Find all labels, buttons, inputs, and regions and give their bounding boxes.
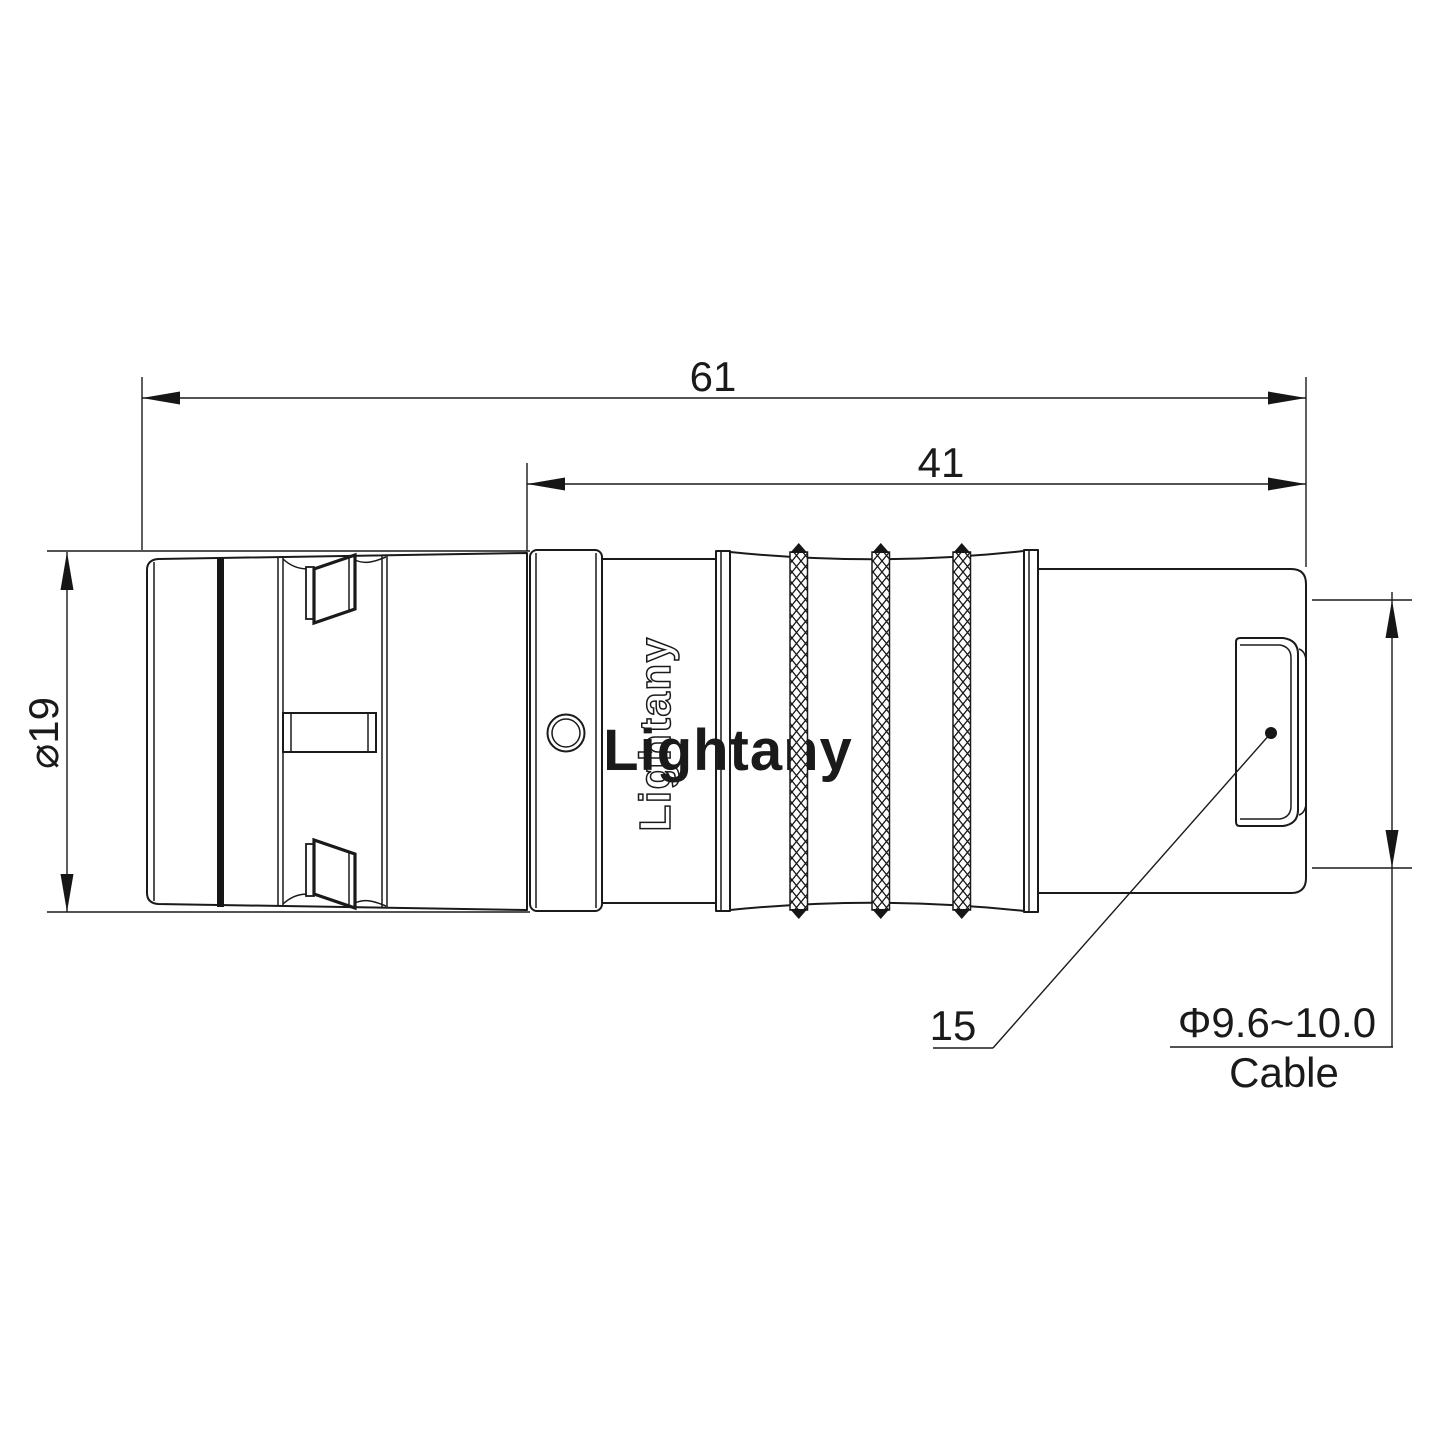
body-engraving-text: Lightany [631,636,680,831]
dimension-rear-length: 41 [527,439,1306,551]
dimension-value-61: 61 [690,353,737,400]
arrowhead-up [1386,600,1399,638]
arrowhead-up [61,552,74,590]
dimension-value-41: 41 [918,439,965,486]
cable-label: Cable [1229,1049,1339,1096]
arrowhead-down [61,874,74,912]
latch-tab-bottom [306,840,355,908]
collar-outline [530,550,602,911]
arrowhead-right [1268,392,1306,405]
cap-edge-hooks [1299,649,1306,815]
technical-drawing-canvas: Lightany [0,0,1440,1440]
ring-right [1024,550,1038,912]
arrowhead-left [142,392,180,405]
vent-hole-inner [552,719,580,747]
knurl-band [790,543,808,919]
latch-tab-top [306,555,355,623]
collar [530,550,602,911]
arrowhead-down [1386,830,1399,868]
arrowhead-left [527,478,565,491]
item-number-15: 15 [930,1002,977,1049]
arrowhead-right [1268,478,1306,491]
dimension-value-diameter-19: ⌀19 [20,697,67,769]
vent-hole-outer [548,715,585,752]
cable-diameter-range-label: Φ9.6~10.0 [1178,999,1376,1046]
dimension-shell-diameter: ⌀19 [20,551,530,912]
knurl-band [953,543,971,919]
connector-drawing: Lightany [0,0,1440,1440]
knurl-band [872,543,890,919]
key-slot [283,713,376,752]
rear-shell [147,553,527,910]
black-ring-band [217,558,224,907]
dimension-overall-length: 61 [142,353,1306,567]
